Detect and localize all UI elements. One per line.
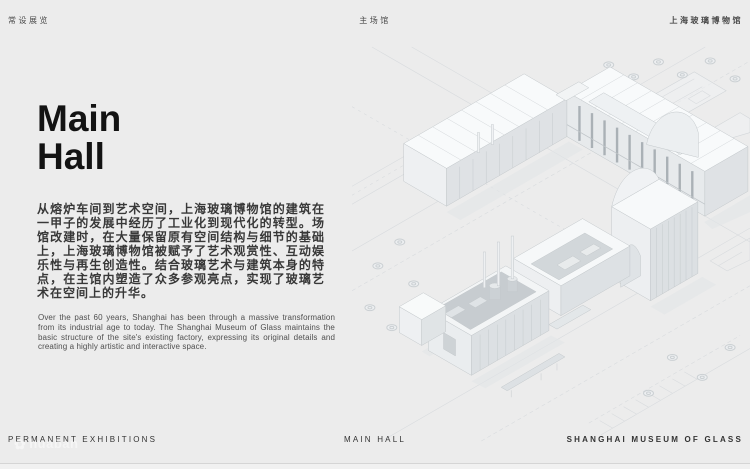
chimney <box>483 252 485 288</box>
header-right-label: 上海玻璃博物馆 <box>670 15 744 26</box>
footer-center-label: MAIN HALL <box>344 435 406 444</box>
page: 常设展览 主场馆 上海玻璃博物馆 Main Hall 从熔炉车间到艺术空间，上海… <box>0 0 750 469</box>
footer-left-label: PERMANENT EXHIBITIONS <box>8 435 157 444</box>
rooftop-chimney <box>491 125 493 145</box>
description-zh: 从熔炉车间到艺术空间，上海玻璃博物馆的建筑在一甲子的发展中经历了工业化到现代化的… <box>37 202 325 300</box>
chimney <box>511 236 513 279</box>
parking-ticks <box>600 372 698 428</box>
title-line-2: Hall <box>37 136 105 177</box>
footer-right-label: SHANGHAI MUSEUM OF GLASS <box>567 435 743 444</box>
rooftop-chimney <box>477 133 479 153</box>
bottom-edge <box>0 463 750 469</box>
building-illustration <box>352 46 750 442</box>
hall-a-wing <box>404 74 567 206</box>
page-title: Main Hall <box>37 100 121 176</box>
chimney <box>497 242 499 286</box>
title-line-1: Main <box>37 98 121 139</box>
header-left-label: 常设展览 <box>8 15 50 26</box>
header-center-label: 主场馆 <box>359 15 391 26</box>
description-en: Over the past 60 years, Shanghai has bee… <box>38 313 335 352</box>
